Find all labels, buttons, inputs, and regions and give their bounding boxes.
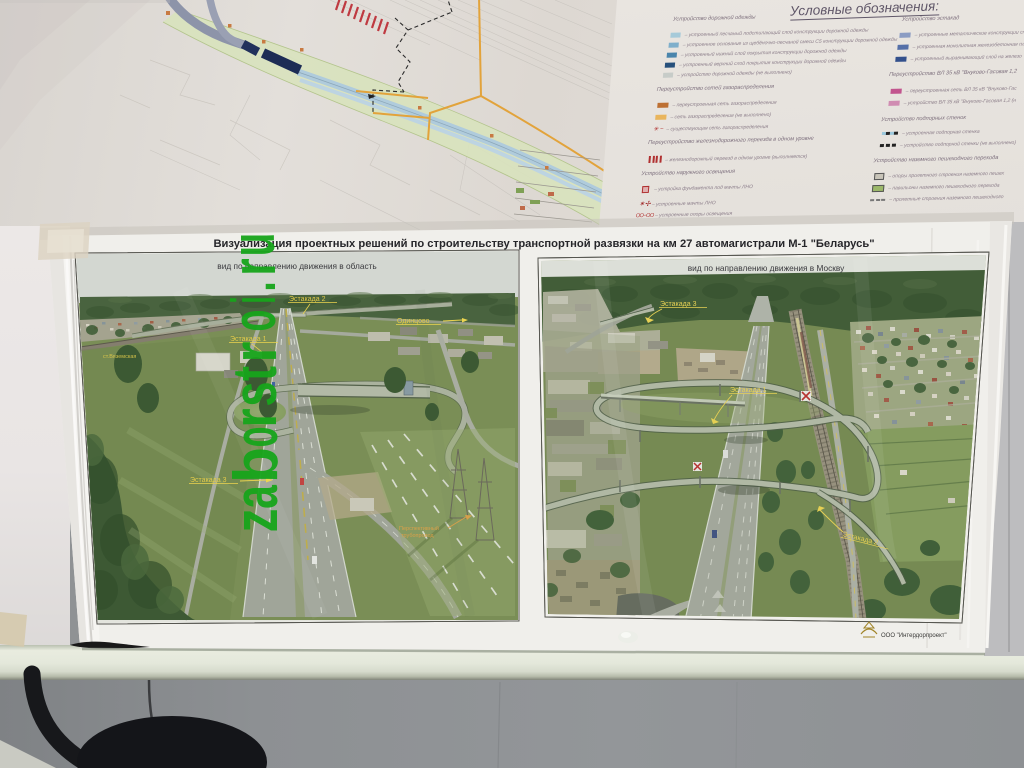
svg-text:Одинцово: Одинцово (397, 318, 430, 325)
svg-text:.: . (219, 281, 288, 291)
svg-text:b: b (221, 447, 291, 483)
svg-text:r: r (220, 408, 290, 427)
svg-text:r: r (220, 258, 289, 275)
svg-text:Визуализация проектных решений: Визуализация проектных решений по строит… (213, 238, 874, 250)
svg-text:i: i (220, 296, 289, 303)
svg-text:z: z (221, 509, 290, 533)
svg-text:Эстакада 1: Эстакада 1 (730, 387, 767, 394)
svg-text:Эстакада 3: Эстакада 3 (660, 301, 697, 308)
svg-text:ст.Вяземская: ст.Вяземская (103, 354, 136, 360)
svg-text:Эстакада 2: Эстакада 2 (289, 296, 326, 303)
svg-text:Перспективный: Перспективный (399, 525, 439, 532)
svg-text:вид по направлению движения в: вид по направлению движения в Москву (688, 263, 845, 273)
svg-text:a: a (222, 485, 291, 509)
svg-text:s: s (220, 381, 290, 406)
svg-text:o: o (219, 310, 289, 332)
svg-text:u: u (218, 233, 288, 256)
svg-text:o: o (221, 427, 290, 448)
svg-text:r: r (221, 341, 290, 362)
svg-text:t: t (220, 366, 290, 381)
svg-text:ООО "Интердорпроект": ООО "Интердорпроект" (881, 633, 947, 639)
svg-text:трубопровод: трубопровод (401, 533, 434, 539)
